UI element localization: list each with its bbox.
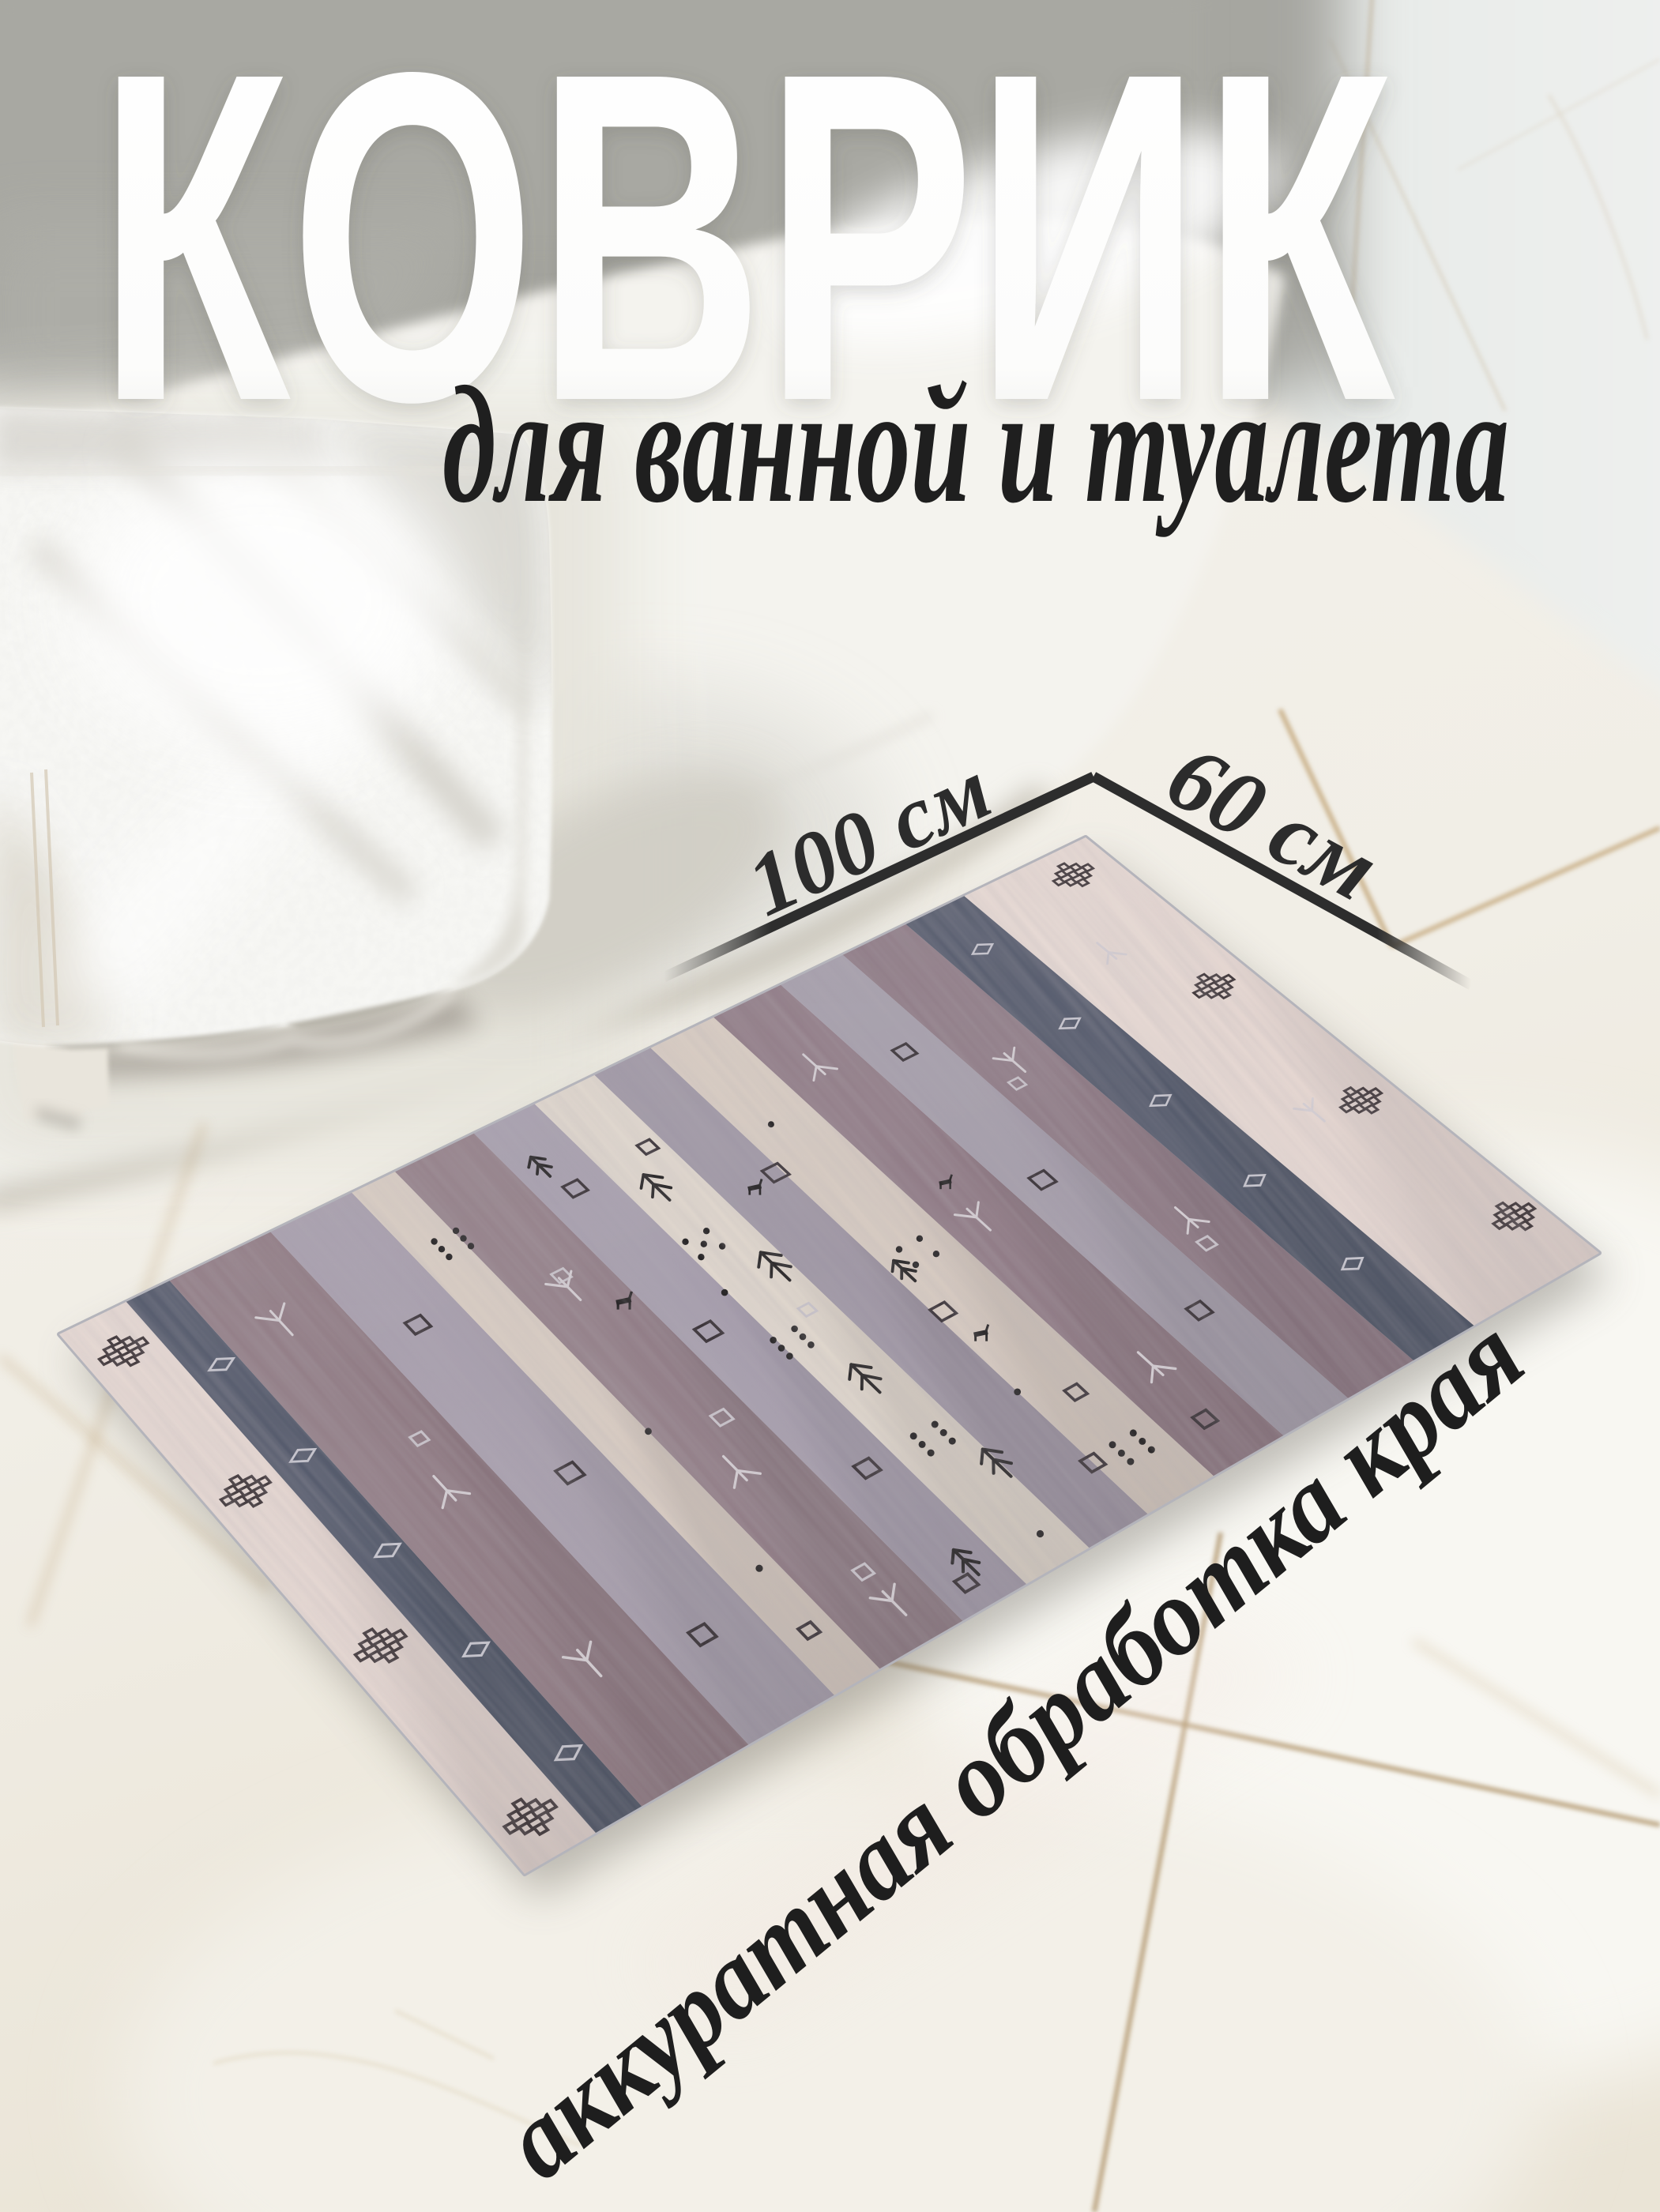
svg-text:для ванной и туалета: для ванной и туалета xyxy=(442,352,1509,537)
